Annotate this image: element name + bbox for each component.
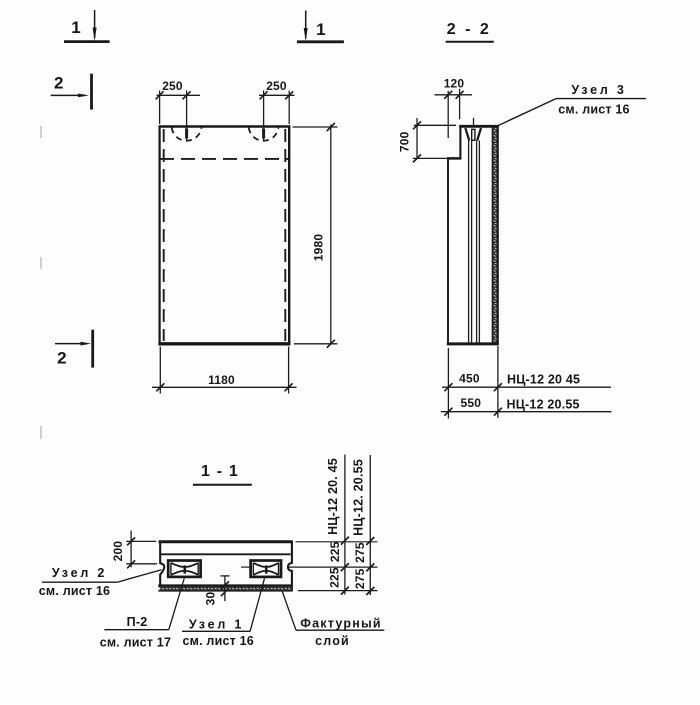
svg-text:1 - 1: 1 - 1 xyxy=(201,463,239,480)
svg-text:НЦ-12 20 45: НЦ-12 20 45 xyxy=(507,373,580,387)
svg-text:НЦ-12 20. 45: НЦ-12 20. 45 xyxy=(326,458,340,535)
svg-text:120: 120 xyxy=(444,77,465,91)
svg-text:200: 200 xyxy=(111,541,125,562)
svg-text:П-2: П-2 xyxy=(127,615,148,629)
svg-text:250: 250 xyxy=(266,79,287,93)
svg-text:1: 1 xyxy=(316,20,325,39)
svg-text:Узел 3: Узел 3 xyxy=(571,83,626,97)
svg-text:700: 700 xyxy=(398,131,412,152)
svg-text:1180: 1180 xyxy=(208,373,235,387)
svg-text:Узел 1: Узел 1 xyxy=(189,618,244,632)
svg-text:250: 250 xyxy=(162,79,183,93)
svg-text:225: 225 xyxy=(327,567,341,588)
svg-text:см. лист 17: см. лист 17 xyxy=(100,636,171,650)
svg-text:НЦ-12. 20.55: НЦ-12. 20.55 xyxy=(351,459,365,536)
svg-text:см. лист 16: см. лист 16 xyxy=(182,634,253,648)
svg-text:Фактурный: Фактурный xyxy=(300,617,381,631)
svg-text:НЦ-12 20.55: НЦ-12 20.55 xyxy=(507,398,580,412)
svg-text:225: 225 xyxy=(328,541,342,562)
svg-text:450: 450 xyxy=(459,372,480,386)
svg-text:Узел 2: Узел 2 xyxy=(52,566,107,580)
svg-text:слой: слой xyxy=(315,634,350,648)
svg-text:1980: 1980 xyxy=(311,234,325,262)
svg-text:275: 275 xyxy=(353,568,367,589)
svg-text:см. лист 16: см. лист 16 xyxy=(558,103,629,117)
svg-text:2 - 2: 2 - 2 xyxy=(447,21,492,38)
svg-text:30: 30 xyxy=(204,592,218,606)
svg-text:1: 1 xyxy=(71,18,80,37)
svg-text:2: 2 xyxy=(54,74,63,93)
svg-text:см. лист 16: см. лист 16 xyxy=(39,584,110,598)
svg-text:275: 275 xyxy=(353,542,367,563)
svg-text:2: 2 xyxy=(57,349,66,368)
svg-text:550: 550 xyxy=(460,396,481,410)
